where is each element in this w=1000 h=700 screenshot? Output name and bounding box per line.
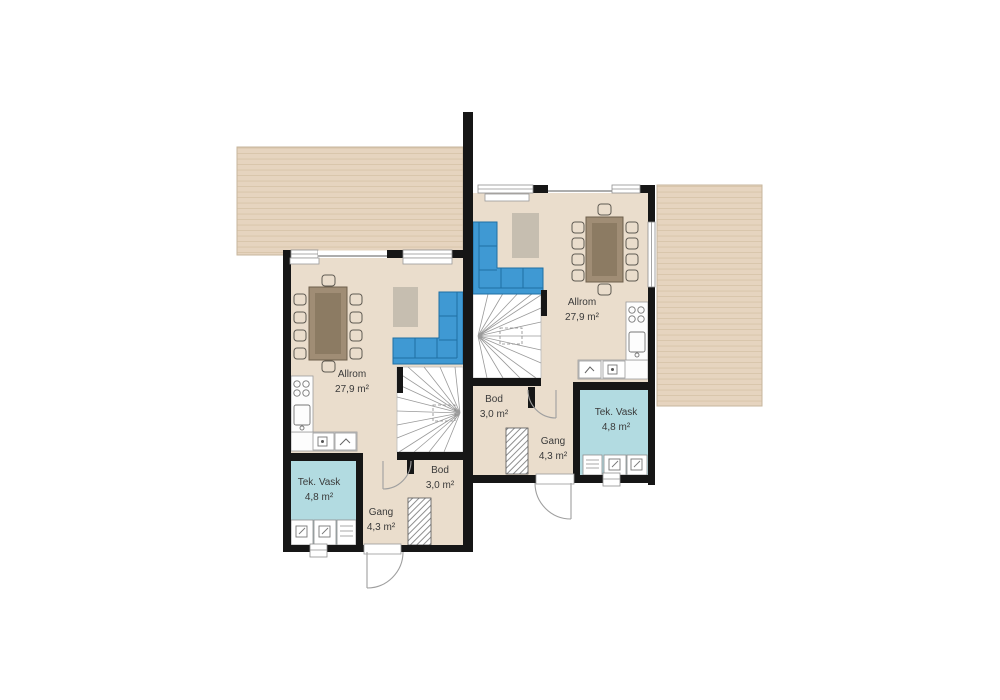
rug-right: [512, 213, 539, 258]
wall-segment: [452, 250, 463, 258]
washer-icon: [604, 455, 626, 475]
laundry-left: [291, 520, 356, 545]
wall-segment: [463, 112, 473, 552]
appliance-box: [335, 433, 356, 450]
wardrobe-right: [506, 428, 528, 474]
wall-segment: [397, 367, 403, 393]
window-sill: [290, 258, 319, 264]
room-name: Bod: [480, 392, 508, 407]
entry-door-swing-left: [367, 552, 403, 588]
wall-segment: [283, 453, 363, 461]
room-label-tek-vask-right: Tek. Vask 4,8 m²: [595, 405, 638, 435]
room-label-allrom-right: Allrom 27,9 m²: [565, 295, 599, 325]
entry-door-panel-right: [536, 474, 574, 484]
staircase-right: [473, 290, 541, 378]
appliance-box: [579, 361, 601, 378]
staircase-left: [397, 367, 463, 452]
laundry-bench-icon: [337, 520, 356, 545]
room-name: Gang: [367, 505, 395, 520]
entry-door-swing-right: [535, 483, 571, 519]
room-name: Allrom: [565, 295, 599, 310]
wall-segment: [640, 185, 655, 193]
wall-segment: [573, 382, 655, 390]
room-area: 4,3 m²: [367, 520, 395, 535]
room-name: Tek. Vask: [595, 405, 638, 420]
wall-segment: [533, 185, 548, 193]
wall-segment: [573, 382, 580, 475]
room-label-gang-right: Gang 4,3 m²: [539, 434, 567, 464]
room-area: 27,9 m²: [565, 310, 599, 325]
window: [310, 544, 327, 557]
laundry-bench-icon: [583, 455, 602, 475]
terrace-deck-right: [657, 185, 762, 406]
floor-plan-page: Allrom 27,9 m² Allrom 27,9 m² Tek. Vask …: [0, 0, 1000, 700]
wall-segment: [356, 453, 363, 545]
wall-segment: [463, 378, 541, 386]
room-name: Gang: [539, 434, 567, 449]
room-area: 4,8 m²: [298, 490, 341, 505]
laundry-right: [583, 455, 647, 475]
wardrobe-left: [408, 498, 431, 545]
entry-door-panel-left: [364, 544, 401, 554]
room-label-gang-left: Gang 4,3 m²: [367, 505, 395, 535]
window-sill: [403, 258, 452, 264]
room-area: 4,3 m²: [539, 449, 567, 464]
dining-table-right: [586, 217, 623, 282]
room-label-tek-vask-left: Tek. Vask 4,8 m²: [298, 475, 341, 505]
room-area: 3,0 m²: [480, 407, 508, 422]
wall-segment: [387, 250, 403, 258]
room-name: Tek. Vask: [298, 475, 341, 490]
washer-icon: [291, 520, 313, 545]
room-name: Bod: [426, 463, 454, 478]
room-name: Allrom: [335, 367, 369, 382]
window-sill: [485, 194, 529, 201]
room-area: 3,0 m²: [426, 478, 454, 493]
floor-plan-canvas: [0, 0, 1000, 700]
wall-segment: [541, 290, 547, 316]
washer-icon: [314, 520, 336, 545]
room-area: 4,8 m²: [595, 420, 638, 435]
window: [603, 473, 620, 486]
rug-left: [393, 287, 418, 327]
terrace-deck-left: [237, 147, 463, 255]
room-area: 27,9 m²: [335, 382, 369, 397]
dining-table-left: [309, 287, 347, 360]
wall-segment: [283, 250, 291, 545]
room-label-allrom-left: Allrom 27,9 m²: [335, 367, 369, 397]
room-label-bod-right: Bod 3,0 m²: [480, 392, 508, 422]
wall-segment: [397, 452, 473, 460]
room-label-bod-left: Bod 3,0 m²: [426, 463, 454, 493]
washer-icon: [627, 455, 647, 475]
